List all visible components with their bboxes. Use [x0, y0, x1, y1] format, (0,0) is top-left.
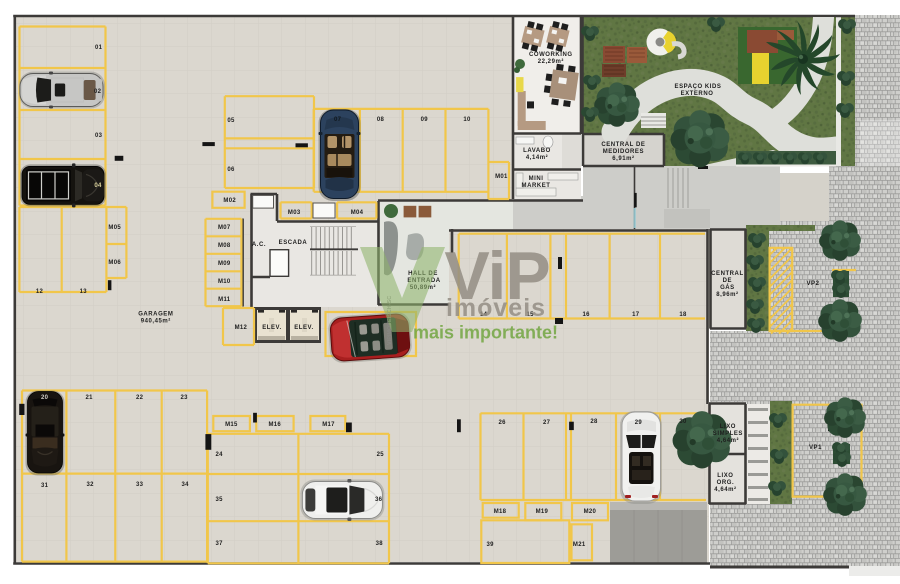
svg-text:35: 35 [215, 497, 223, 503]
svg-text:SIMPLES: SIMPLES [713, 431, 743, 437]
svg-text:ESCADA: ESCADA [279, 240, 308, 246]
svg-text:M16: M16 [269, 422, 282, 428]
svg-text:10: 10 [463, 117, 471, 123]
svg-text:M07: M07 [218, 225, 231, 231]
svg-text:MARKET: MARKET [522, 183, 551, 189]
svg-text:8,96m²: 8,96m² [716, 291, 738, 298]
svg-text:M02: M02 [223, 198, 236, 204]
svg-text:LIXO: LIXO [717, 473, 733, 479]
svg-text:06: 06 [227, 167, 235, 173]
svg-text:M18: M18 [494, 509, 507, 515]
svg-text:38: 38 [376, 541, 384, 547]
svg-text:4,64m²: 4,64m² [717, 437, 739, 444]
svg-text:09: 09 [421, 117, 429, 123]
svg-text:imóveis: imóveis [446, 294, 546, 322]
svg-text:ELEV.: ELEV. [262, 325, 282, 331]
svg-text:M10: M10 [218, 279, 231, 285]
svg-text:MINI: MINI [529, 176, 544, 182]
svg-text:12: 12 [36, 289, 44, 295]
svg-text:17: 17 [632, 312, 640, 318]
svg-text:CENTRAL: CENTRAL [711, 271, 744, 277]
svg-text:MEDIDORES: MEDIDORES [603, 149, 644, 155]
svg-text:ORG.: ORG. [717, 480, 735, 486]
svg-text:22,29m²: 22,29m² [538, 58, 564, 65]
svg-text:01: 01 [95, 45, 103, 51]
svg-text:A.C.: A.C. [252, 242, 266, 248]
svg-text:16: 16 [583, 312, 591, 318]
svg-text:18: 18 [679, 312, 687, 318]
svg-text:M03: M03 [288, 210, 301, 216]
svg-text:20: 20 [41, 395, 49, 401]
svg-text:36: 36 [375, 497, 383, 503]
svg-text:ELEV.: ELEV. [294, 325, 314, 331]
svg-text:LIXO: LIXO [720, 424, 736, 430]
svg-text:M20: M20 [584, 509, 597, 515]
svg-text:EXTERNO: EXTERNO [681, 91, 714, 97]
svg-text:CENTRAL DE: CENTRAL DE [601, 142, 645, 148]
svg-text:30: 30 [679, 419, 687, 425]
svg-text:M12: M12 [235, 325, 248, 331]
svg-text:39: 39 [486, 542, 494, 548]
svg-text:13: 13 [80, 289, 88, 295]
svg-text:07: 07 [334, 117, 342, 123]
svg-text:GARAGEM: GARAGEM [138, 312, 173, 318]
svg-text:4,64m²: 4,64m² [714, 486, 736, 493]
svg-text:ESPAÇO KIDS: ESPAÇO KIDS [675, 84, 722, 90]
svg-text:32: 32 [86, 482, 94, 488]
svg-text:DE: DE [723, 278, 732, 284]
svg-text:M09: M09 [218, 261, 231, 267]
svg-text:08: 08 [377, 117, 385, 123]
svg-text:03: 03 [95, 133, 103, 139]
svg-text:28: 28 [590, 419, 598, 425]
svg-text:05: 05 [227, 118, 235, 124]
svg-text:COWORKING: COWORKING [529, 52, 573, 58]
svg-text:M17: M17 [322, 422, 335, 428]
svg-text:GÁS: GÁS [720, 284, 735, 291]
svg-text:M01: M01 [495, 174, 508, 180]
svg-text:33: 33 [136, 482, 144, 488]
svg-text:22: 22 [136, 395, 144, 401]
svg-text:31: 31 [41, 483, 49, 489]
svg-text:M04: M04 [351, 210, 364, 216]
svg-text:34: 34 [181, 482, 189, 488]
svg-text:VP1: VP1 [809, 445, 822, 451]
svg-text:26: 26 [499, 420, 507, 426]
svg-text:02: 02 [94, 89, 102, 95]
svg-text:27: 27 [543, 420, 551, 426]
svg-text:04: 04 [94, 183, 102, 189]
svg-text:M19: M19 [536, 509, 549, 515]
svg-text:24: 24 [215, 452, 223, 458]
svg-text:M06: M06 [108, 260, 121, 266]
svg-text:4,14m²: 4,14m² [526, 154, 548, 161]
svg-text:VP2: VP2 [807, 281, 820, 287]
svg-text:29: 29 [635, 420, 643, 426]
svg-text:25: 25 [377, 452, 385, 458]
svg-text:6,91m²: 6,91m² [612, 155, 634, 162]
svg-text:M11: M11 [218, 297, 231, 303]
svg-text:M15: M15 [225, 422, 238, 428]
svg-text:M05: M05 [108, 225, 121, 231]
svg-text:37: 37 [215, 541, 223, 547]
svg-text:LAVABO: LAVABO [523, 148, 551, 154]
svg-text:23: 23 [180, 395, 188, 401]
svg-text:M21: M21 [573, 542, 586, 548]
svg-text:940,45m²: 940,45m² [141, 318, 171, 325]
svg-text:M08: M08 [218, 243, 231, 249]
svg-text:mais importante!: mais importante! [413, 323, 558, 343]
svg-text:21: 21 [85, 395, 93, 401]
